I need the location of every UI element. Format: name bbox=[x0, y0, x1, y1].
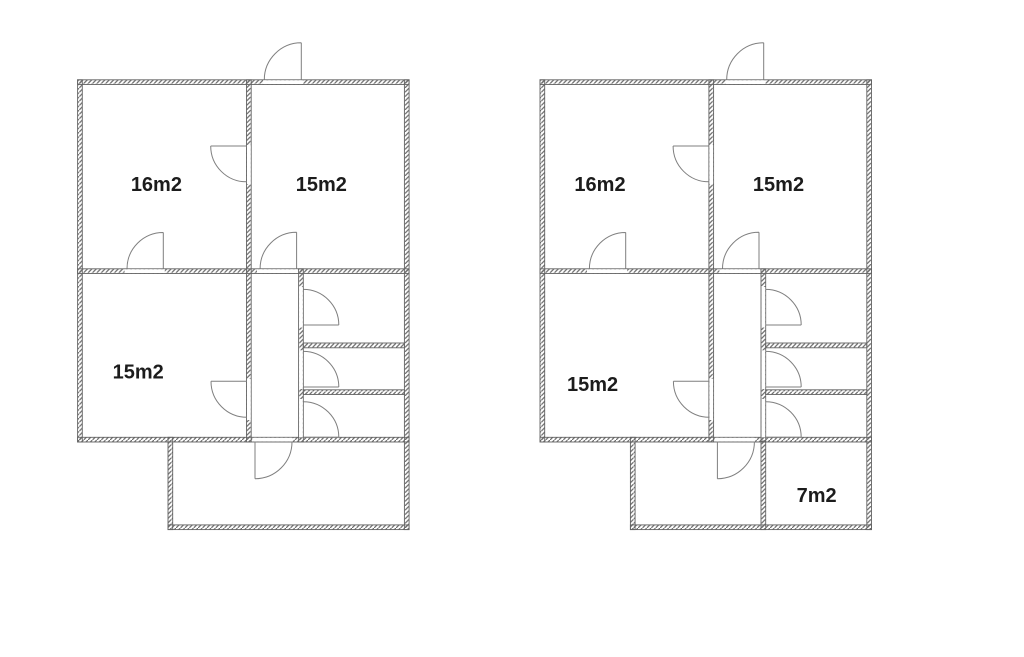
svg-text:16m2: 16m2 bbox=[131, 174, 182, 196]
svg-text:16m2: 16m2 bbox=[574, 174, 625, 196]
svg-text:7m2: 7m2 bbox=[797, 485, 837, 507]
svg-text:15m2: 15m2 bbox=[753, 174, 804, 196]
svg-text:15m2: 15m2 bbox=[296, 174, 347, 196]
svg-text:15m2: 15m2 bbox=[113, 362, 164, 384]
svg-text:15m2: 15m2 bbox=[567, 374, 618, 396]
